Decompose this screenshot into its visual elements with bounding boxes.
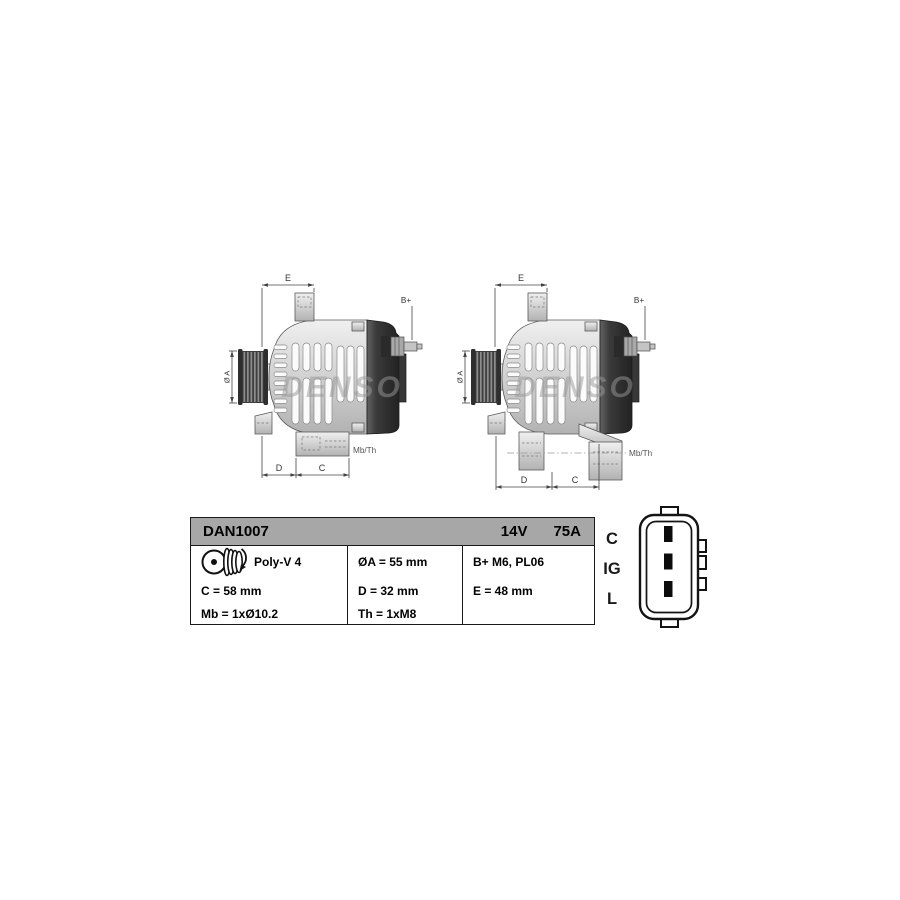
spec-table-body: Poly-V 4 C = 58 mm Mb = 1xØ10.2 ØA = 55 … [191, 546, 594, 624]
spec-cell-empty [473, 604, 594, 624]
alternator-technical-drawing: EB+Ø ADENSOMb/ThDC [224, 266, 459, 501]
vent-slot [303, 343, 310, 371]
front-mount-ear [488, 412, 505, 434]
dimension-dia-a: Ø A [457, 351, 470, 403]
dim-label-d: D [276, 463, 283, 473]
pulley-type-label: Poly-V 4 [254, 555, 301, 569]
dim-label-b-plus: B+ [634, 296, 644, 305]
pin-label-c: C [606, 530, 618, 548]
alternator-side-view-left: EB+Ø ADENSOMb/ThDC [224, 266, 459, 501]
connector-diagram: C IG L [595, 500, 720, 640]
alternator-side-view-right: EB+Ø ADENSOMb/ThDC [457, 266, 692, 501]
dimension-d-c: DC [496, 436, 599, 490]
bolt-boss-top [352, 322, 364, 331]
cooling-louver [274, 408, 287, 413]
pulley [471, 349, 501, 405]
spec-table: DAN1007 14V75A Poly-V 4 [190, 517, 595, 625]
cooling-louver [507, 345, 520, 350]
vent-slot [314, 343, 321, 371]
top-mount-lug [295, 293, 314, 321]
current-rating: 75A [553, 523, 581, 540]
cooling-louver [274, 363, 287, 368]
connector-pin-c [664, 526, 673, 542]
bottom-mount-foot-right [589, 442, 622, 480]
cooling-louver [274, 354, 287, 359]
dim-label-c: C [572, 475, 579, 485]
pin-label-ig: IG [603, 560, 620, 578]
cooling-louver [507, 354, 520, 359]
spec-cell-d: D = 32 mm [358, 578, 462, 604]
cooling-louver [507, 408, 520, 413]
cooling-louver [507, 363, 520, 368]
vent-slot [525, 343, 532, 371]
dim-label-c: C [319, 463, 326, 473]
product-model: DAN1007 [203, 523, 269, 540]
dim-label-dia-a: Ø A [224, 371, 232, 384]
cooling-louver [274, 345, 287, 350]
b-plus-terminal [614, 336, 655, 357]
vent-slot [558, 343, 565, 371]
top-mount-lug [528, 293, 547, 321]
vent-slot [536, 343, 543, 371]
dim-label-b-plus: B+ [401, 296, 411, 305]
pulley [238, 349, 268, 405]
spec-table-header: DAN1007 14V75A [191, 518, 594, 546]
connector-pin-ig [664, 554, 673, 570]
dim-label-e: E [518, 273, 524, 283]
bolt-boss-top [585, 322, 597, 331]
spec-cell-mb: Mb = 1xØ10.2 [201, 604, 347, 624]
pin-label-l: L [607, 590, 617, 608]
denso-watermark: DENSO [514, 371, 636, 404]
vent-slot [547, 343, 554, 371]
vent-slot [292, 343, 299, 371]
connector-pin-l [664, 581, 673, 597]
dim-label-e: E [285, 273, 291, 283]
dim-label-dia-a: Ø A [457, 371, 465, 384]
dim-label-d: D [521, 475, 528, 485]
bolt-boss-bottom [352, 423, 364, 432]
dim-label-mb-th: Mb/Th [629, 449, 653, 458]
bottom-mount-foot-left [519, 432, 544, 470]
dim-label-mb-th: Mb/Th [353, 446, 377, 455]
spec-cell-c: C = 58 mm [201, 578, 347, 604]
pulley-icon [201, 545, 247, 579]
voltage-rating: 14V [501, 523, 528, 540]
alternator-technical-drawing: EB+Ø ADENSOMb/ThDC [457, 266, 692, 501]
b-plus-terminal [381, 336, 422, 357]
spec-cell-dia-a: ØA = 55 mm [358, 546, 462, 578]
dimension-dia-a: Ø A [224, 351, 237, 403]
b-plus-callout: B+ [634, 296, 645, 340]
b-plus-callout: B+ [401, 296, 412, 340]
spec-column-3: B+ M6, PL06 E = 48 mm [463, 546, 594, 624]
product-spec-sheet: EB+Ø ADENSOMb/ThDC EB+Ø ADENSOMb/ThDC DA… [0, 0, 900, 900]
vent-slot [325, 343, 332, 371]
spec-column-1: Poly-V 4 C = 58 mm Mb = 1xØ10.2 [191, 546, 348, 624]
front-mount-ear [255, 412, 272, 434]
spec-cell-th: Th = 1xM8 [358, 604, 462, 624]
denso-watermark: DENSO [281, 371, 403, 404]
electrical-ratings: 14V75A [475, 523, 581, 540]
bottom-mount-lug [296, 432, 349, 456]
spec-column-2: ØA = 55 mm D = 32 mm Th = 1xM8 [348, 546, 463, 624]
spec-cell-b-plus: B+ M6, PL06 [473, 546, 594, 578]
spec-cell-e: E = 48 mm [473, 578, 594, 604]
pulley-spec-cell: Poly-V 4 [201, 546, 347, 578]
